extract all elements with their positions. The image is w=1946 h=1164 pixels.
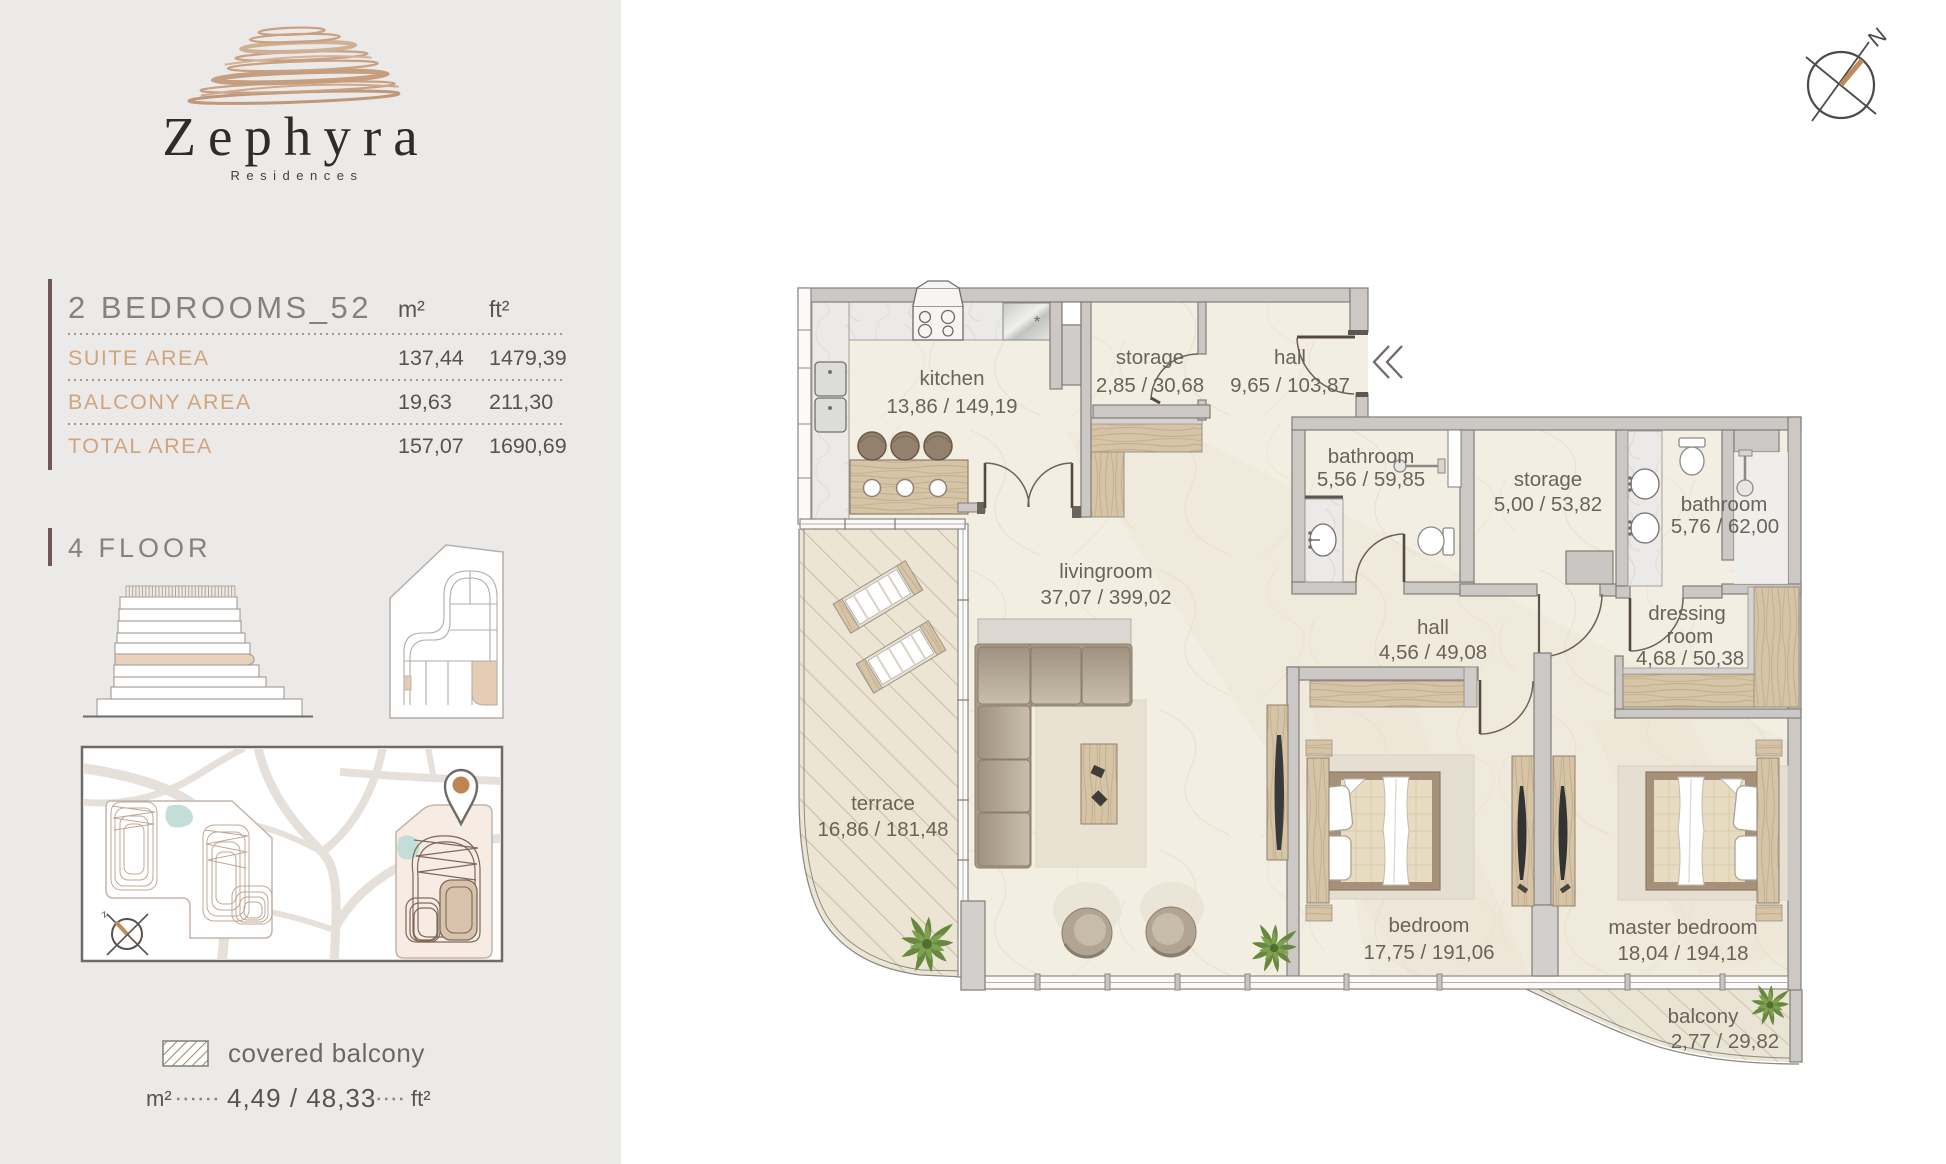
svg-text:terrace: terrace — [851, 792, 915, 815]
svg-text:17,75 / 191,06: 17,75 / 191,06 — [1363, 941, 1494, 964]
svg-text:211,30: 211,30 — [489, 390, 553, 414]
svg-text:livingroom: livingroom — [1059, 560, 1152, 583]
svg-text:TOTAL AREA: TOTAL AREA — [68, 434, 213, 458]
svg-text:m²: m² — [398, 296, 425, 322]
svg-text:storage: storage — [1514, 468, 1582, 491]
svg-text:room: room — [1667, 625, 1714, 648]
svg-text:bedroom: bedroom — [1389, 914, 1470, 937]
svg-text:m²: m² — [146, 1086, 172, 1111]
svg-text:SUITE AREA: SUITE AREA — [68, 346, 210, 370]
svg-text:master bedroom: master bedroom — [1608, 916, 1757, 939]
svg-text:1690,69: 1690,69 — [489, 434, 567, 458]
svg-text:hall: hall — [1274, 346, 1306, 369]
svg-text:Residences: Residences — [231, 168, 364, 183]
svg-text:2,85 / 30,68: 2,85 / 30,68 — [1096, 374, 1204, 397]
svg-text:dressing: dressing — [1648, 602, 1726, 625]
svg-text:kitchen: kitchen — [920, 367, 985, 390]
svg-text:*: * — [1034, 314, 1040, 331]
svg-text:5,56 / 59,85: 5,56 / 59,85 — [1317, 468, 1425, 491]
svg-text:4 FLOOR: 4 FLOOR — [68, 533, 212, 563]
svg-text:balcony: balcony — [1668, 1005, 1739, 1028]
svg-text:bathroom: bathroom — [1328, 445, 1415, 468]
svg-text:5,76 / 62,00: 5,76 / 62,00 — [1671, 515, 1779, 538]
svg-text:1479,39: 1479,39 — [489, 346, 567, 370]
svg-text:storage: storage — [1116, 346, 1184, 369]
svg-text:Zephyra: Zephyra — [162, 106, 429, 167]
svg-text:18,04 / 194,18: 18,04 / 194,18 — [1617, 942, 1748, 965]
svg-text:4,56 / 49,08: 4,56 / 49,08 — [1379, 641, 1487, 664]
svg-text:13,86 / 149,19: 13,86 / 149,19 — [886, 395, 1017, 418]
svg-text:ft²: ft² — [489, 296, 510, 322]
svg-text:ft²: ft² — [411, 1086, 431, 1111]
svg-text:4,49 / 48,33: 4,49 / 48,33 — [227, 1083, 376, 1113]
svg-text:BALCONY AREA: BALCONY AREA — [68, 390, 252, 414]
svg-text:bathroom: bathroom — [1681, 493, 1768, 516]
svg-text:4,68 / 50,38: 4,68 / 50,38 — [1636, 647, 1744, 670]
svg-text:hall: hall — [1417, 616, 1449, 639]
svg-text:2,77 / 29,82: 2,77 / 29,82 — [1671, 1030, 1779, 1053]
svg-text:37,07 / 399,02: 37,07 / 399,02 — [1040, 586, 1171, 609]
svg-text:2 BEDROOMS_52: 2 BEDROOMS_52 — [68, 290, 372, 325]
svg-text:19,63: 19,63 — [398, 390, 452, 414]
svg-text:137,44: 137,44 — [398, 346, 464, 370]
svg-text:5,00 / 53,82: 5,00 / 53,82 — [1494, 493, 1602, 516]
svg-text:9,65 / 103,87: 9,65 / 103,87 — [1230, 374, 1350, 397]
svg-text:16,86 / 181,48: 16,86 / 181,48 — [817, 818, 948, 841]
svg-text:covered balcony: covered balcony — [228, 1038, 425, 1068]
svg-text:157,07: 157,07 — [398, 434, 464, 458]
